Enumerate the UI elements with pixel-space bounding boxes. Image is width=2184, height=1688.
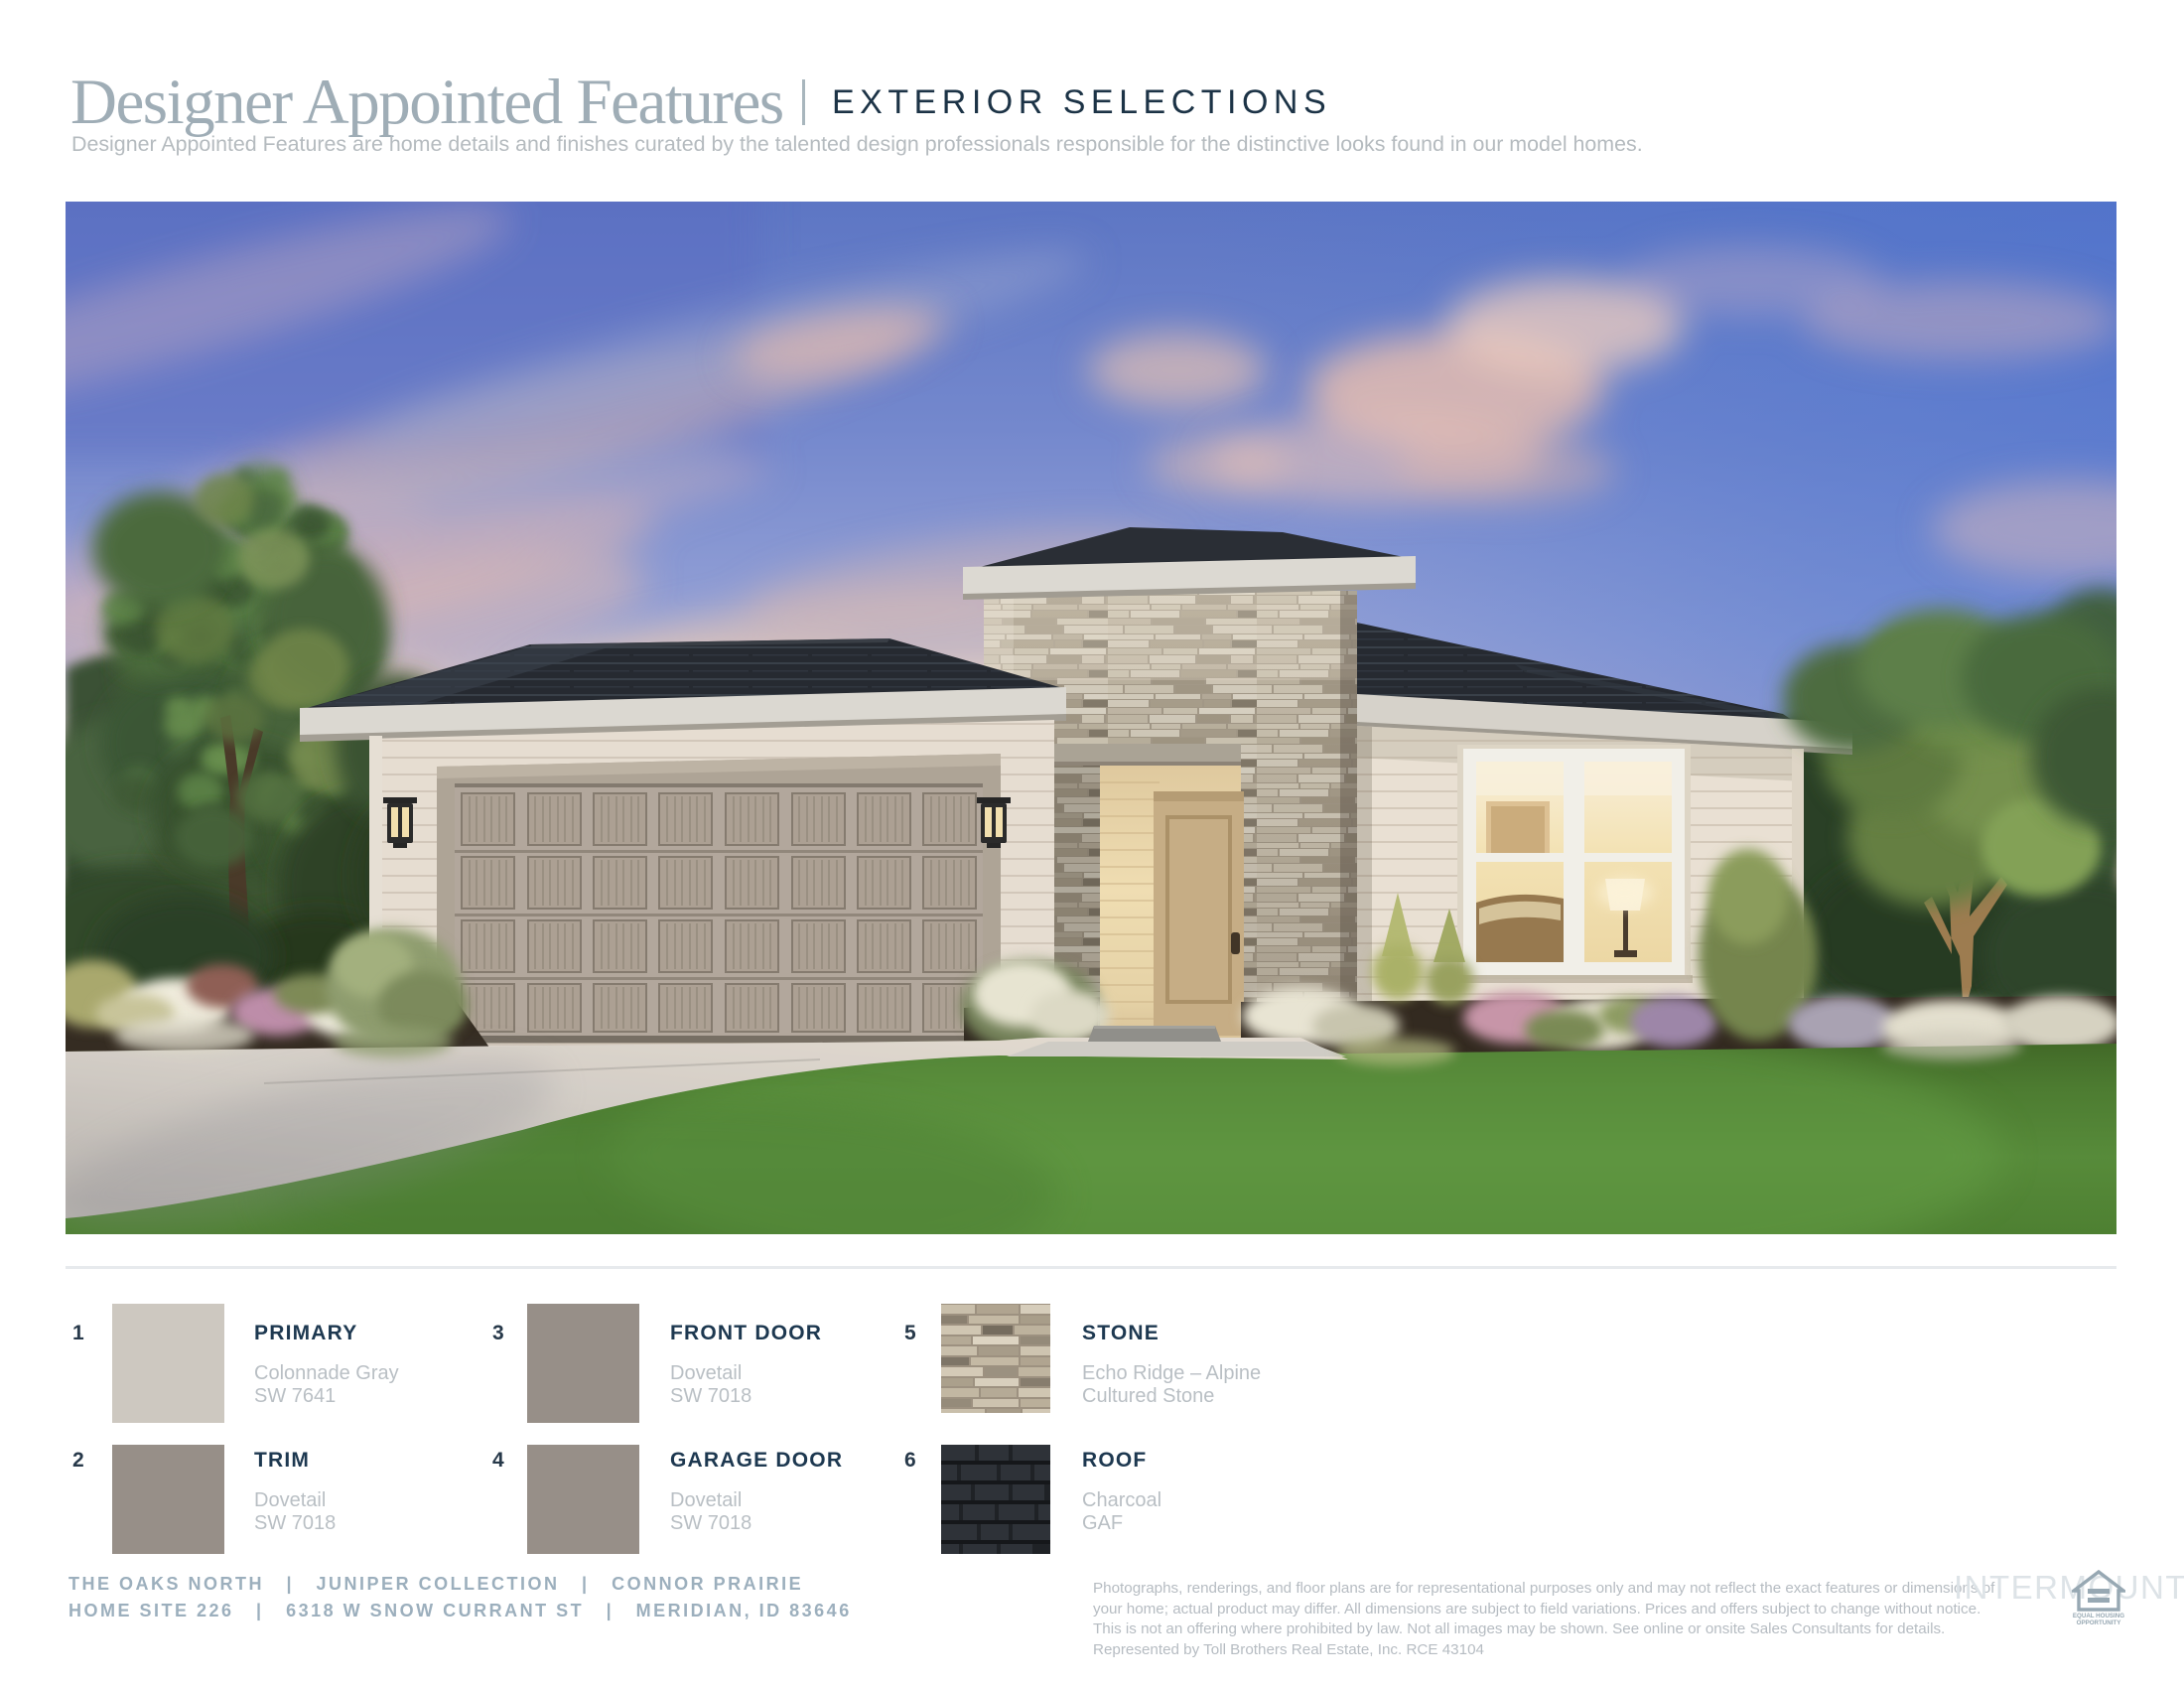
svg-text:OPPORTUNITY: OPPORTUNITY bbox=[2077, 1619, 2122, 1626]
svg-text:EQUAL HOUSING: EQUAL HOUSING bbox=[2073, 1613, 2124, 1619]
